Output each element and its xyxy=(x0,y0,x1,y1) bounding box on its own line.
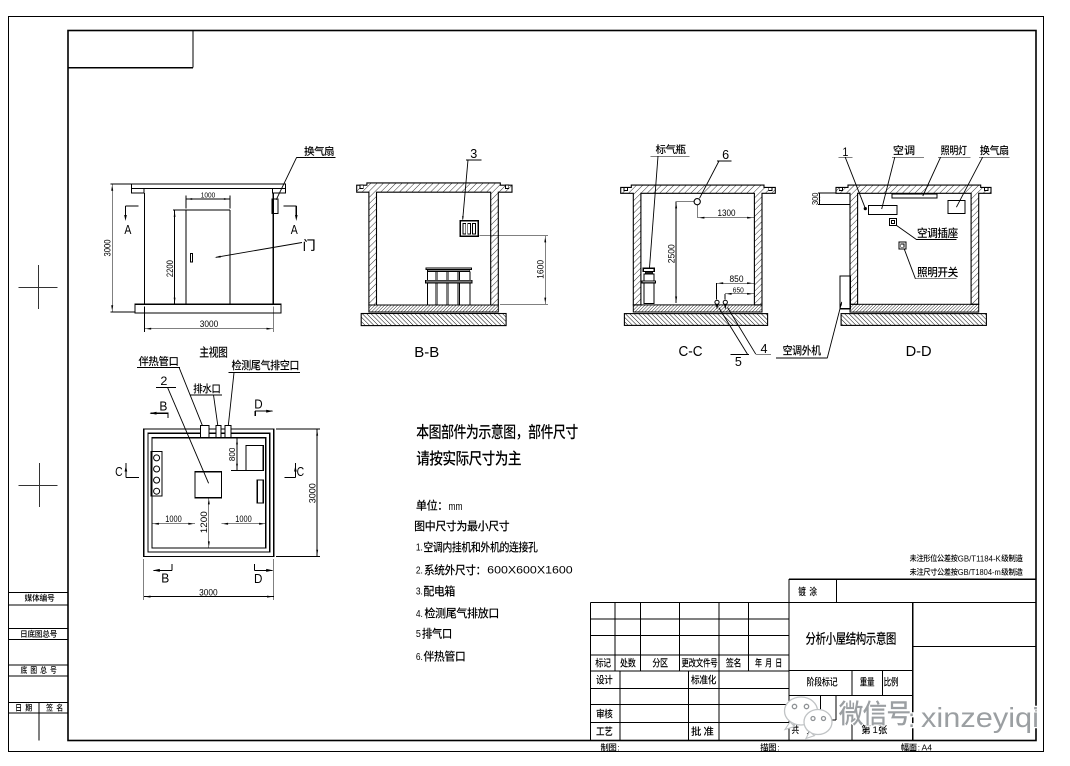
svg-text:850: 850 xyxy=(730,274,744,284)
svg-text:2500: 2500 xyxy=(666,244,676,263)
svg-text:4.: 4. xyxy=(416,608,423,620)
svg-text:1300: 1300 xyxy=(718,208,736,218)
svg-text:1000: 1000 xyxy=(235,514,252,524)
svg-text::: : xyxy=(918,744,920,753)
svg-text:B-B: B-B xyxy=(414,345,439,361)
svg-text::: : xyxy=(618,744,620,753)
svg-text:2200: 2200 xyxy=(165,260,175,277)
svg-text:A: A xyxy=(291,222,298,237)
svg-text:5: 5 xyxy=(735,355,742,369)
svg-text:1000: 1000 xyxy=(201,190,216,199)
svg-text:xinzeyiqi: xinzeyiqi xyxy=(921,702,1039,733)
svg-text:GB/T1804-m: GB/T1804-m xyxy=(958,568,1001,577)
svg-text:B: B xyxy=(161,570,169,585)
svg-text:3.: 3. xyxy=(416,586,423,598)
svg-text:C: C xyxy=(297,464,305,479)
svg-text:1000: 1000 xyxy=(165,514,182,524)
svg-text:B: B xyxy=(159,398,167,413)
svg-text:3000: 3000 xyxy=(307,483,317,503)
svg-text:C-C: C-C xyxy=(679,344,703,360)
svg-text:1.: 1. xyxy=(416,542,423,554)
svg-text:300: 300 xyxy=(811,192,820,205)
svg-text:1600: 1600 xyxy=(535,260,545,279)
svg-text:800: 800 xyxy=(227,447,237,461)
svg-text:1200: 1200 xyxy=(199,511,209,533)
svg-text:D: D xyxy=(254,571,262,586)
svg-text:3000: 3000 xyxy=(199,587,218,597)
svg-text:600X600X1600: 600X600X1600 xyxy=(487,564,573,576)
svg-text:3000: 3000 xyxy=(102,240,112,257)
svg-text:2.: 2. xyxy=(416,564,423,576)
svg-text:5: 5 xyxy=(416,628,421,640)
svg-text:C: C xyxy=(115,464,123,479)
svg-text:GB/T1184-K: GB/T1184-K xyxy=(958,554,1002,563)
svg-text:2: 2 xyxy=(160,376,167,388)
svg-text:A: A xyxy=(124,222,131,237)
svg-text:A4: A4 xyxy=(922,743,933,753)
svg-text:D: D xyxy=(254,396,262,411)
svg-text::: : xyxy=(777,744,779,753)
svg-text:D-D: D-D xyxy=(906,344,932,360)
svg-text:mm: mm xyxy=(449,501,463,513)
svg-text::: : xyxy=(908,703,915,733)
svg-text:1: 1 xyxy=(873,725,878,736)
svg-text:6.: 6. xyxy=(416,651,423,663)
svg-text:650: 650 xyxy=(733,286,744,295)
svg-text:3000: 3000 xyxy=(200,319,219,329)
svg-text:6: 6 xyxy=(722,148,729,162)
svg-text:3: 3 xyxy=(470,147,477,161)
svg-text:4: 4 xyxy=(761,342,768,356)
